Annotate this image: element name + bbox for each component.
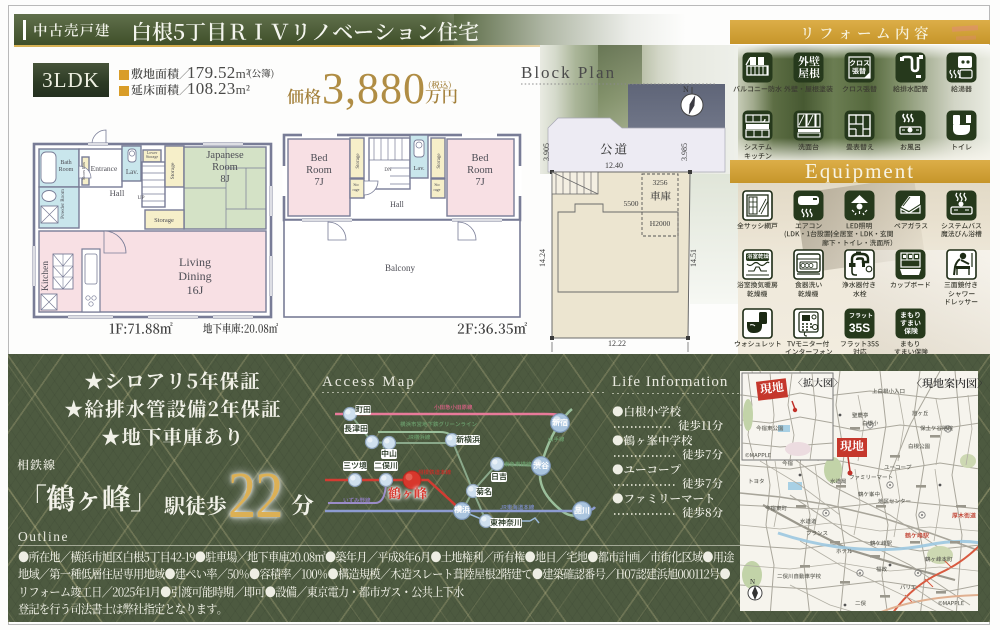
svg-text:Bath: Bath <box>60 160 71 166</box>
svg-text:Storage: Storage <box>146 154 158 159</box>
svg-text:Hall: Hall <box>110 188 125 198</box>
svg-text:UP: UP <box>137 195 144 201</box>
svg-text:12.40: 12.40 <box>605 161 623 170</box>
svg-text:7J: 7J <box>314 177 323 188</box>
svg-text:3.905: 3.905 <box>542 143 551 161</box>
svg-text:3256: 3256 <box>653 178 668 187</box>
svg-text:Powder Room: Powder Room <box>60 189 66 219</box>
svg-text:16J: 16J <box>187 283 204 297</box>
svg-text:Block Plan: Block Plan <box>521 63 616 82</box>
svg-text:14.51: 14.51 <box>689 249 698 267</box>
svg-text:8J: 8J <box>220 174 229 185</box>
svg-text:Shoes Box: Shoes Box <box>81 161 86 180</box>
svg-text:Storage: Storage <box>170 162 176 179</box>
svg-text:35S: 35S <box>849 321 870 335</box>
svg-text:7J: 7J <box>475 177 484 188</box>
svg-text:rage: rage <box>353 187 360 192</box>
svg-text:Bed: Bed <box>472 153 490 164</box>
svg-text:Entrance: Entrance <box>91 164 118 173</box>
svg-text:Room: Room <box>59 167 74 173</box>
svg-text:H2000: H2000 <box>650 219 671 228</box>
svg-text:Lav.: Lav. <box>413 165 425 172</box>
svg-text:Storage: Storage <box>154 217 174 224</box>
svg-text:Bed: Bed <box>311 153 329 164</box>
svg-text:DN: DN <box>384 168 392 173</box>
svg-text:rage: rage <box>434 187 441 192</box>
svg-text:Balcony: Balcony <box>385 263 415 273</box>
svg-text:Living: Living <box>179 255 211 269</box>
svg-text:Storage: Storage <box>356 153 361 169</box>
svg-text:Dining: Dining <box>178 269 211 283</box>
svg-text:Hall: Hall <box>390 200 405 209</box>
svg-text:Japanese: Japanese <box>206 150 244 161</box>
svg-text:3.985: 3.985 <box>680 143 689 161</box>
svg-text:Lav.: Lav. <box>126 168 138 176</box>
svg-text:Kitchen: Kitchen <box>41 261 51 291</box>
svg-text:N: N <box>750 578 755 586</box>
svg-text:Room: Room <box>467 165 493 176</box>
svg-text:5500: 5500 <box>624 199 639 208</box>
svg-text:Storage: Storage <box>437 153 442 169</box>
svg-text:N: N <box>683 85 689 94</box>
svg-text:12.22: 12.22 <box>608 339 626 348</box>
svg-text:Room: Room <box>306 165 332 176</box>
svg-text:14.24: 14.24 <box>538 249 547 267</box>
svg-text:Room: Room <box>212 162 238 173</box>
